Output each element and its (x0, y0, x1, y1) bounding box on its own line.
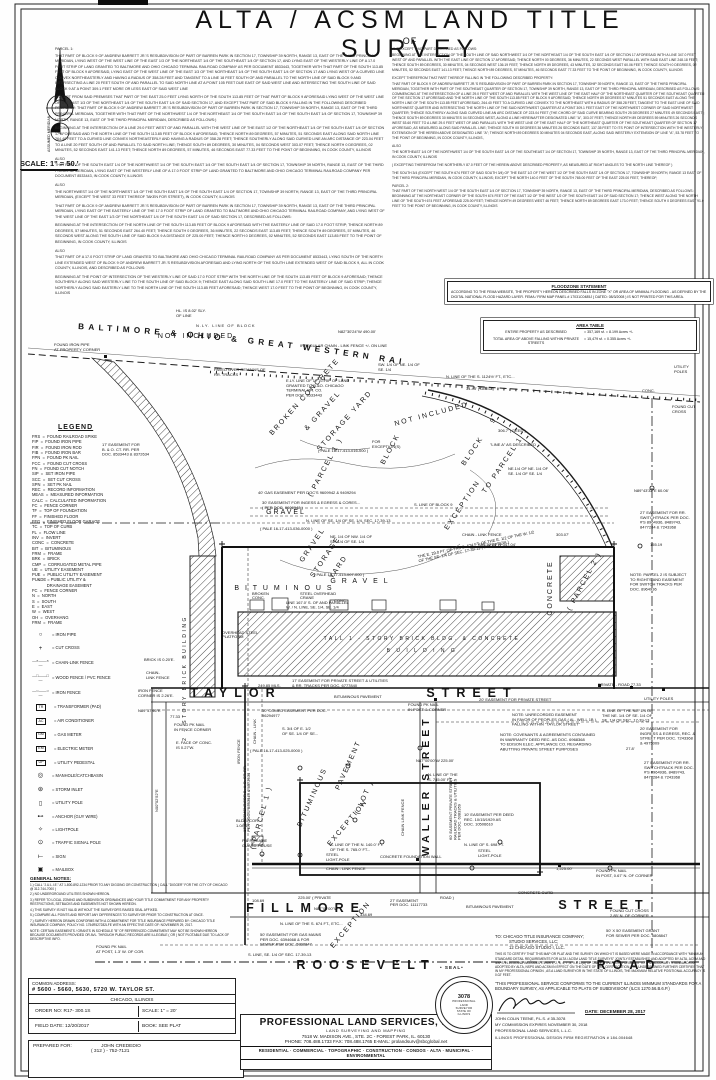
map-label: 1,225.00' (556, 866, 573, 871)
legal-paragraph: PARCEL 2: (392, 184, 705, 189)
legend-title: LEGEND (58, 424, 180, 431)
legend-symbol-icon: ⊷ (32, 814, 49, 820)
area-table-row: TOTAL AREA OF ABOVE FALLING WITHIN PRIVA… (488, 337, 692, 346)
legend-symbol-item: ⊙ = TRAFFIC SIGNAL POLE (32, 840, 180, 847)
map-label: S. LINE OF THE N. 140.0' FT.OF THE S. 76… (330, 842, 383, 852)
to-line: CHICAGO TITLE INSURANCE COMPANY; (503, 934, 584, 939)
legal-paragraph: (EXCEPT FROM SAID PREMISES THAT PART OF … (55, 95, 385, 123)
note-item: 7.) SURVEY HEREON DRAWN CONFORMS WITH A … (30, 919, 230, 927)
map-label: FOUND IRON PIPEAT PROPERTY CORNER (54, 342, 100, 352)
map-label: NOTE: UNRECORDED EASEMENTIN FAVOR OF PEO… (512, 712, 597, 727)
note-item: 2.) NO UNDERGROUND UTILITIES SHOWN HEREO… (30, 892, 230, 896)
map-label: N. LINE OF THE S. 1124½' FT., ETC... (446, 374, 515, 379)
map-label: CHAIN - LINK FENCE (462, 532, 502, 537)
map-label: E. FACE OF CONC.IS 0.27'W. (176, 740, 212, 750)
map-label: PRIVATE - ROAD 77.33 (598, 682, 642, 687)
note-item: 3.) REFER TO LOCAL ZONING AND SUBDIVISIO… (30, 898, 230, 906)
map-label: S. LINE OF THE NE. 1/4 OFTHE NE. 1/4 OF … (602, 708, 653, 723)
legend-symbol-icon: —×——×— (32, 659, 49, 667)
map-label: BLOCK (460, 435, 485, 467)
legend-symbol-item: TR = TRANSFORMER (PAD) (32, 704, 180, 711)
map-label: ( PALE 16-17-413-016-000 ) (318, 448, 369, 453)
prepared-for-label: PREPARED FOR: (33, 1044, 72, 1049)
map-label: P & P FRAMEGUARD-HOUSE (242, 838, 272, 848)
legal-paragraph: THAT PART OF THE SOUTH EAST 1/4 OF THE N… (55, 163, 385, 180)
legend-symbol-icon: ✧ (32, 827, 49, 833)
map-label: FOUND CUTCROSS (672, 404, 696, 414)
legend-symbol-item: EM = ELECTRIC METER (32, 746, 180, 753)
map-label: NOT INCLUDED (394, 401, 470, 428)
company-address: 7518 W. MADISON AVE., STE. 2C - FOREST P… (241, 1034, 491, 1039)
map-label: N.LY. LINE OF BLOCK (196, 323, 256, 328)
map-label: BITUMINOUS (296, 767, 328, 828)
map-label: N. LINE OF THE S. 674 FT., ETC... (280, 921, 343, 926)
legal-paragraph: BEGINNING AT THE INTERSECTION OF THE NOR… (55, 223, 385, 245)
legal-paragraph: THE SOUTH 3/4 (EXCEPT THE SOUTH 674 FEET… (392, 171, 705, 181)
map-label: 303.07' (556, 532, 569, 537)
map-label: HL. IS 8.02' SLY.OF LINE (176, 308, 206, 318)
legend-symbol-item: ◎ = MANHOLE/CATCHBASIN (32, 773, 180, 780)
map-label: CHAIN - LINK (252, 719, 257, 744)
legend-symbol-icon: —○——○— (32, 689, 49, 697)
city: CHICAGO, ILLINOIS (29, 994, 235, 1003)
map-label: 17' EASEMENT FOR PRIVATE STREET & UTILIT… (292, 678, 388, 688)
legal-paragraph: THAT PART OF THE NORTH WEST 1/4 OF THE S… (392, 189, 705, 209)
map-label: N87°00'00"W 225.00' (416, 758, 454, 763)
legend-symbol-item: —□——□— = WOOD FENCE / PVC FENCE (32, 674, 180, 682)
svg-text:ASSUMED MERIDIAN: ASSUMED MERIDIAN (47, 115, 51, 152)
legend-symbol-icon: ○ (32, 632, 49, 638)
certification-block: TO: CHICAGO TITLE INSURANCE COMPANY; STU… (495, 934, 707, 1040)
map-label: ( PALE 16-17-413-007-000 ) (314, 572, 365, 577)
map-label: ( LOT ) (354, 780, 375, 816)
map-label: 155.19 (650, 542, 663, 547)
book: BOOK: SEE PLAT (139, 1021, 232, 1032)
map-label: FOUND PK NAILAT POST, 1.3' W. OF COR. (96, 944, 144, 954)
map-label: S. LINE, SE. 1/4 OF SEC. 17-39-13 (248, 952, 312, 957)
legend-symbol-item: AC = AIR CONDITIONER (32, 718, 180, 725)
map-label: NE. 1/4 OF NW. 1/4 OFSE. 1/4 OF SE. 1/4 (330, 534, 373, 544)
survey-sheet: BALTIMORE & OHIO & GREAT WESTERN RAILROA… (0, 0, 716, 1080)
map-label: 20' EASEMENT FOR PRIVATE STREET (479, 697, 552, 702)
map-label: UTILITY POLES (644, 696, 674, 701)
map-label: 9 (489, 416, 498, 425)
firm-registration: ILLINOIS PROFESSIONAL DESIGN FIRM REGIST… (495, 1036, 707, 1040)
certification-body: THIS IS TO CERTIFY THAT THIS MAP OR PLAT… (495, 952, 707, 977)
to-label: TO: (495, 934, 502, 939)
legal-paragraph: THE NORTHEAST 1/4 OF THE NORTHWEST 1/4 O… (392, 150, 705, 160)
map-label: N89°43'32"E 60.06' (634, 488, 669, 493)
map-label: ( PALE 16-17-413-036-0000 ) (260, 526, 313, 531)
legend-symbol-icon: ▣ (32, 867, 49, 873)
map-label: FOUND PK NAILIN POST, 0.67' N. OF CORNER (596, 868, 653, 878)
map-label: 17' EASEMENT FOR B. & O. CT. RR.PER DOCS… (242, 765, 251, 832)
info-table: COMMON ADDRESS: # 5600 - 5660, 5630, 572… (28, 978, 236, 1034)
map-label: CONC. (642, 388, 655, 393)
floodzone-body: ACCORDING TO THE FEMA WEBSITE, THE PROPE… (451, 290, 707, 299)
prepared-for-box: PREPARED FOR: JOHN CREDEDIO ( 312 ) - 75… (28, 1040, 244, 1078)
map-label: 225.00' ( PRIVATE (298, 895, 331, 900)
legal-paragraph: BEGINNING AT THE INTERSECTION OF A LINE … (55, 126, 385, 154)
legend-symbol-icon: UP (36, 760, 46, 767)
map-label: 27.8' (626, 746, 635, 751)
map-label: 20' EASEMENT FORINGRESS & EGRESS, REC. &… (640, 726, 695, 745)
map-label: NOTE: PARCEL 2 IS SUBJECTTO RIGHTS AND E… (630, 572, 687, 591)
surveyor-line: PROFESSIONAL LAND SERVICES, L.L.C. (495, 1028, 707, 1034)
legend-symbol-item: + = CUT CROSS (32, 646, 180, 652)
legal-paragraph: ALSO (55, 249, 385, 255)
map-label: S89°52'04"W 347.04' (478, 542, 516, 547)
map-label: BROKENCONC. (252, 591, 269, 600)
legal-paragraph: ALSO (55, 183, 385, 189)
legal-paragraph: THAT PART OF A 17.0 FOOT STRIP OF LAND G… (55, 255, 385, 272)
map-label: BITUMINOUS PAVEMENT (466, 904, 514, 909)
legend-symbol-icon: GM (36, 732, 46, 739)
common-address-label: COMMON ADDRESS: (32, 981, 232, 986)
legal-paragraph: PARCEL 1: (55, 47, 385, 53)
map-label: SW. 1/4 OF NE. 1/4 OFSE. 1/4 (378, 362, 420, 372)
map-label: UTILITYPOLES (674, 364, 689, 374)
map-label: CHAIN - LINK FENCE (326, 866, 366, 871)
legal-paragraph: EXCEPT THEREFROM THAT PART THEREOF FALLI… (392, 76, 705, 81)
field-date: FIELD DATE: 12/20/2017 (32, 1021, 139, 1032)
legend-symbol-icon: ⟝ (32, 854, 49, 860)
legend-item: FRM = FRAME (32, 620, 180, 625)
map-label: 34.43' ( DEED ) (466, 386, 495, 391)
map-label: NE.1/4 OF NE. 1/4 OFSE. 1/4 OF SE. 1/4 (508, 466, 549, 476)
note-item: 4.) THIS SURVEY IS NOT VALID WITHOUT THE… (30, 908, 230, 912)
area-table-row: ENTIRE PROPERTY AS DESCRIBED = 357,169 s… (488, 330, 692, 335)
map-label: NOTE: COVENANTS & AGREEMENTS CONTAINEDIN… (500, 732, 595, 751)
legend-symbol-item: —○——○— = IRON FENCE (32, 689, 180, 697)
map-label: 10' EASEMENT PER DEEDREC. 10/15/1929 ASD… (464, 812, 514, 827)
legend-symbol-icon: ⊛ (32, 787, 49, 794)
area-table-title: AREA TABLE (488, 323, 692, 328)
legend-symbol-item: —×——×— = CHAIN-LINK FENCE (32, 659, 180, 667)
map-label: 27' EASEMENTPER DOC. 11117733 (390, 898, 428, 907)
to-line: 12 CHICAGO STUDIO I, LLC. (509, 945, 707, 950)
legend-symbol-icon: AC (36, 718, 46, 725)
legal-description-left: PARCEL 1:THAT PART OF BLOCK 9 OF ANDREW … (55, 44, 385, 300)
legal-paragraph: BEGINNING AT THE POINT OF INTERSECTION O… (55, 275, 385, 297)
legal-paragraph: THAT PART OF BLOCK 9 OF ANDREW BARRETT J… (55, 54, 385, 93)
legend-item: PU&DE = PUBLIC UTILITY & DRAINAGE EASEME… (32, 577, 180, 588)
legend-symbol-item: ⊷ = ANCHOR (GUY WIRE) (32, 814, 180, 820)
client-phone: ( 312 ) - 752-7121 (91, 1049, 239, 1054)
legal-paragraph: ALSO (55, 157, 385, 163)
map-label: N. LINE OF SE. 1/4 OF SE. 1/4, SEC. 17-3… (306, 518, 391, 523)
map-label: S. LINE OF BLOCK 9 (414, 502, 453, 507)
map-label: TAYLOR (190, 686, 281, 700)
date-label: DATE: (585, 1009, 599, 1014)
map-label: STREET (420, 715, 432, 780)
legal-description-right: AND EXCEPT THAT PART DESCRIBED AS FOLLOW… (392, 44, 705, 212)
common-address: # 5600 - 5660, 5630, 5720 W. TAYLOR ST. (32, 987, 232, 993)
map-label: CONCRETE (547, 560, 554, 615)
scan-artifact (98, 0, 148, 5)
note-item: 5.) COMPARE ALL POINTS AND REPORT ANY DI… (30, 913, 230, 917)
map-label: 10' COMED EASEMENT PER DOC.96294977 (262, 708, 327, 718)
legend-symbol-icon: EM (36, 746, 46, 753)
legend-symbol-item: ✧ = LIGHTPOLE (32, 827, 180, 833)
plat-scale: SCALE: 1" = 20' (139, 1006, 232, 1017)
map-label: N87°00'00"W (314, 906, 338, 911)
map-label: FOUND PK NAILIN POST & CORNER (408, 702, 446, 712)
map-label: CHAIN LINK FENCE (400, 799, 405, 836)
legal-paragraph: ( EXCEPTING THEREFROM THE NORTHERLY 87.0… (392, 163, 705, 168)
legend-symbol-icon: —□——□— (32, 674, 49, 682)
legend-symbol-icon: ⊙ (32, 840, 49, 847)
legend: LEGEND FRS = FOUND RAILROAD SPIKEFIP = F… (32, 424, 180, 873)
map-label: CONC. (334, 598, 347, 603)
map-label: IRON FENCE (236, 739, 241, 764)
map-label: GRAVEL (266, 509, 306, 516)
map-label: 249.85 MLS. (258, 683, 281, 688)
legend-symbol-icon: + (32, 646, 49, 652)
legal-paragraph: THAT PART OF BLOCK 9 OF ANDREW BARRETT J… (392, 82, 705, 141)
note-item: NOTE: CERTAIN EASEMENTS / GRANTS IN SCHE… (30, 929, 230, 941)
map-label: FOUND CUT CROSS2.85' N. OF CORNER (610, 908, 649, 918)
legend-symbol-item: ⊛ = STORM INLET (32, 787, 180, 794)
map-label: STEEL OVERHEADCRANE (300, 591, 336, 600)
legend-symbol-icon: ▯ (32, 801, 49, 807)
company-services: RESIDENTIAL · COMMERCIAL · TOPOGRAPHIC ·… (241, 1046, 491, 1060)
map-label: ROAD ) (440, 895, 455, 900)
legal-paragraph: ALSO (392, 144, 705, 149)
map-label: 60' EASEMENT PRIVATE STREETRAILROAD TRAC… (448, 777, 462, 840)
legend-symbol-item: ▯ = UTILITY POLE (32, 801, 180, 807)
general-notes-title: GENERAL NOTES: (30, 876, 230, 881)
area-table: AREA TABLE ENTIRE PROPERTY AS DESCRIBED … (483, 320, 697, 351)
legal-paragraph: THAT PART OF BLOCK 9 OF ANDREW BARRETT J… (55, 204, 385, 221)
map-label: 30' EASEMENT FOR INGESS & EGRESS & CORES… (262, 500, 360, 510)
map-label: N82°30'24"W 490.00' (338, 329, 376, 334)
map-label: G R A V E L (330, 578, 389, 585)
map-label: "LINE A" AS DESCRIBED (490, 442, 536, 447)
surveyor-signature (495, 993, 581, 1015)
map-label: 306.7' ( DEED ) (498, 428, 527, 433)
map-label: STEELLIGHT-POLE (326, 852, 350, 862)
legend-symbol-icon: TR (36, 704, 46, 711)
map-label: 50' EASEMENT FOR GAS MAINSPER DOC. 63946… (260, 932, 321, 947)
company-contact: PHONE: 708.488.1733 FAX: 708.488.1765 E-… (241, 1039, 491, 1044)
legend-symbol-item: UP = UTILITY PEDESTAL (32, 760, 180, 767)
note-item: 1.) CALL "J.U.L.I.E." AT 1-800-892-1234 … (30, 883, 230, 891)
map-label: B U I L D I N G (387, 648, 458, 654)
legend-symbol-item: ○ = IRON PIPE (32, 632, 180, 638)
map-label: N. LINE OF S. 698 FT. (464, 842, 504, 847)
map-label: FILLMORE (246, 901, 366, 915)
map-label: 108.69 (252, 898, 265, 903)
map-label: STORAGE YARD (316, 389, 374, 452)
map-label: TALL 1 - STORY BRICK BLDG. & CONCRETE (324, 636, 521, 642)
map-label: ROOSEVELT (296, 958, 435, 972)
legal-paragraph: AND EXCEPT THAT PART DESCRIBED AS FOLLOW… (392, 47, 705, 52)
floodzone-title: FLOODZONE STATEMENT (451, 284, 707, 289)
map-label: 40' GAS EASEMENT PER DOC'S 9609942 & 940… (258, 490, 357, 495)
legend-symbol-item: ▣ = MAILBOX (32, 867, 180, 873)
legal-paragraph: BEGINNING AT THE INTERSECTION OF THE SOU… (392, 53, 705, 73)
map-label: BITUMINOUS PAVEMENT (334, 694, 382, 699)
seal-label: • SEAL• (440, 965, 464, 970)
general-notes: GENERAL NOTES: 1.) CALL "J.U.L.I.E." AT … (30, 876, 230, 941)
map-label: CONCRETE CURB (518, 890, 553, 895)
map-label: 27' EASEMENT FOR RR.SWITCHTRACK PER DOC.… (640, 510, 690, 529)
certification-date: DECEMBER 28, 2017 (600, 1009, 645, 1014)
map-label: S. 3/4 OF E. 1/2OF SE. 1/4 OF SE... (282, 726, 318, 736)
floodzone-statement: FLOODZONE STATEMENT ACCORDING TO THE FEM… (447, 281, 711, 302)
legend-symbol-item: GM = GAS METER (32, 732, 180, 739)
conformance-statement: "THIS PROFESSIONAL SERVICE CONFORMS TO T… (495, 981, 707, 992)
order-number: ORDER NO: R17- 300.1S (32, 1006, 139, 1017)
surveyor-seal: 3078 PROFESSIONAL LAND SURVEYOR STATE OF… (435, 976, 493, 1034)
map-label: NOT INCLUDED (158, 333, 234, 340)
map-label: 334.69 (360, 912, 373, 917)
map-label: BLOCK (380, 433, 402, 466)
map-label: CONCRETE FOUNDATION WALL (380, 854, 442, 859)
map-label: STEELLIGHT-POLE (478, 848, 502, 858)
map-label: IRREGULAR CHAIN - LINK FENCE +/- ON LINE (300, 343, 387, 348)
map-label: ( PALE 16-17-413-025-0000 ) (250, 748, 303, 753)
legal-paragraph: THE NORTHWEST 1/4 OF THE NORTHWEST 1/4 O… (55, 190, 385, 201)
map-label: WALLER (420, 788, 432, 856)
legend-symbol-item: ⟝ = SIGN (32, 854, 180, 860)
map-label: 27' EASEMENT FOR RR.SWITCHTRACK PER DOC.… (644, 760, 694, 779)
legend-symbol-icon: ◎ (32, 773, 49, 780)
